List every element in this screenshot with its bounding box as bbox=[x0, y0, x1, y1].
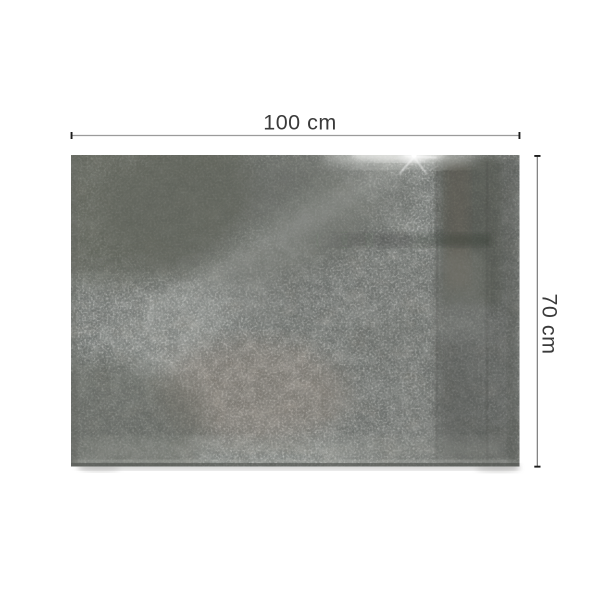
svg-text:100 cm: 100 cm bbox=[263, 111, 337, 135]
svg-text:70 cm: 70 cm bbox=[538, 293, 562, 354]
